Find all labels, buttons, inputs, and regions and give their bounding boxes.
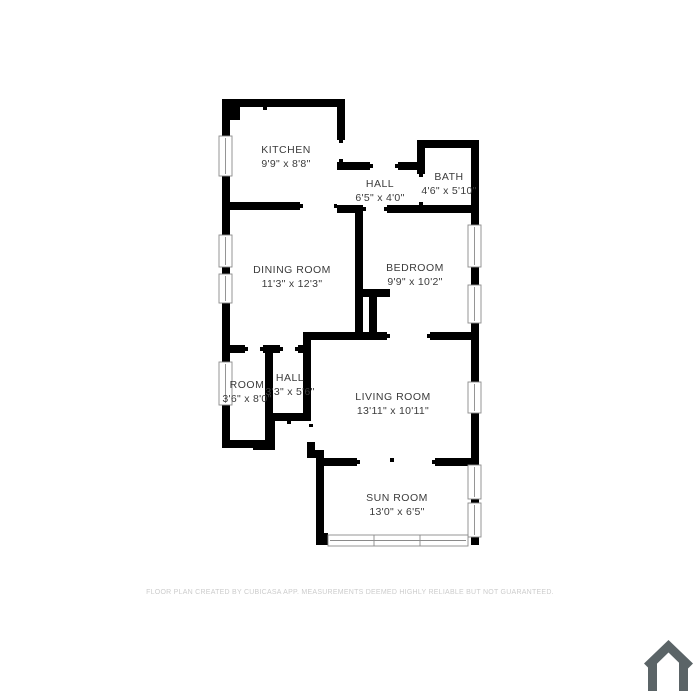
room-dims: 9'9" x 8'8" <box>261 157 311 171</box>
room-dims: 3'3" x 5'6" <box>265 385 314 399</box>
window <box>219 235 232 267</box>
window <box>219 136 232 176</box>
room-dims: 13'0" x 6'5" <box>366 505 428 519</box>
window <box>468 382 481 413</box>
room-label-sun-room: SUN ROOM 13'0" x 6'5" <box>366 491 428 519</box>
room-dims: 4'6" x 5'10" <box>421 184 476 198</box>
room-label-dining-room: DINING ROOM 11'3" x 12'3" <box>253 263 331 291</box>
window <box>468 503 481 537</box>
window <box>468 285 481 323</box>
window <box>468 465 481 499</box>
room-name: KITCHEN <box>261 143 311 157</box>
room-label-room: ROOM 3'6" x 8'0" <box>222 378 271 406</box>
room-name: DINING ROOM <box>253 263 331 277</box>
room-label-kitchen: KITCHEN 9'9" x 8'8" <box>261 143 311 171</box>
room-dims: 6'5" x 4'0" <box>355 191 404 205</box>
floor-plan-page: KITCHEN 9'9" x 8'8" HALL 6'5" x 4'0" BAT… <box>0 0 700 700</box>
room-label-bath: BATH 4'6" x 5'10" <box>421 170 476 198</box>
room-name: LIVING ROOM <box>355 390 431 404</box>
room-label-hall-lower: HALL 3'3" x 5'6" <box>265 371 314 399</box>
disclaimer-text: FLOOR PLAN CREATED BY CUBICASA APP. MEAS… <box>0 589 700 596</box>
room-label-living-room: LIVING ROOM 13'11" x 10'11" <box>355 390 431 418</box>
window <box>468 225 481 267</box>
room-dims: 11'3" x 12'3" <box>253 277 331 291</box>
window <box>328 535 468 546</box>
room-label-hall-upper: HALL 6'5" x 4'0" <box>355 177 404 205</box>
room-dims: 9'9" x 10'2" <box>386 275 444 289</box>
window <box>219 274 232 303</box>
room-name: ROOM <box>222 378 271 392</box>
room-dims: 13'11" x 10'11" <box>355 404 431 418</box>
room-label-bedroom: BEDROOM 9'9" x 10'2" <box>386 261 444 289</box>
house-icon <box>644 640 693 691</box>
room-name: BATH <box>421 170 476 184</box>
room-name: SUN ROOM <box>366 491 428 505</box>
room-dims: 3'6" x 8'0" <box>222 392 271 406</box>
room-name: BEDROOM <box>386 261 444 275</box>
room-name: HALL <box>355 177 404 191</box>
room-name: HALL <box>265 371 314 385</box>
